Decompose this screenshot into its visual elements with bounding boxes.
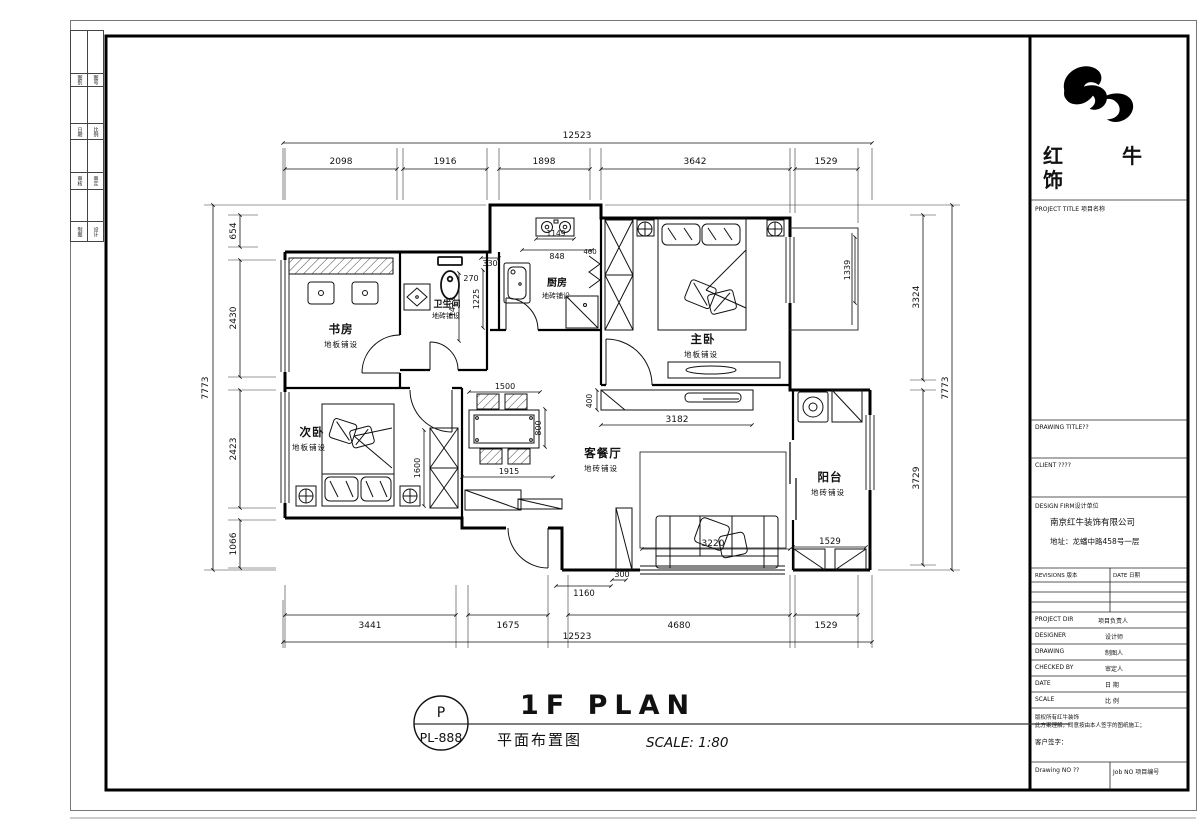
dim-sofa-3220: 3220: [702, 539, 725, 549]
project-title-label: PROJECT TITLE 项目名称: [1035, 204, 1105, 213]
project-dir-cn: 项目负责人: [1098, 616, 1128, 625]
plan-title-en: 1F PLAN: [520, 690, 696, 721]
date-row-label: DATE: [1035, 680, 1051, 687]
balcony-window: [866, 415, 874, 490]
doors: [362, 256, 796, 568]
room-second-finish: 地板铺设: [292, 442, 326, 452]
firm-name: 南京红牛装饰有限公司: [1050, 516, 1135, 528]
shoe-cabinet: [616, 508, 632, 570]
drawing-no-label: Drawing NO ??: [1035, 767, 1079, 774]
dimension-texts: 12523 2098 1916 1898 3642 1529 7773 654 …: [201, 131, 951, 642]
dim-bottom-1: 3441: [359, 621, 382, 631]
edge-label: 设计: [93, 227, 98, 237]
balcony-sliding-door: [790, 442, 796, 520]
master-bed: [658, 218, 746, 330]
dim-dining-1500: 1500: [495, 382, 515, 391]
dim-kitchen-460: 460: [583, 248, 596, 256]
kitchen-sink: [504, 263, 530, 303]
study-desk: [289, 258, 393, 274]
dim-window-1339: 1339: [843, 260, 852, 280]
master-door: [606, 339, 652, 385]
kitchen-folding-door: [589, 256, 600, 288]
study-door: [362, 335, 400, 373]
dim-bath-1225: 1225: [472, 289, 481, 309]
entry-door: [508, 528, 548, 568]
designer-cn: 设计师: [1105, 632, 1123, 641]
extension-lines: [204, 148, 960, 648]
room-study-finish: 地板铺设: [324, 339, 358, 349]
dim-top-total: 12523: [563, 131, 592, 141]
dim-wardrobe-1600: 1600: [413, 458, 422, 478]
room-kitchen-finish: 地砖铺设: [542, 291, 570, 300]
edge-label: 比例: [93, 127, 98, 137]
balcony-cabinet: [832, 390, 862, 422]
room-second: 次卧: [300, 425, 325, 439]
master-dresser: [668, 362, 780, 378]
plan-scale: SCALE: 1:80: [646, 735, 728, 751]
dim-top-1: 2098: [330, 157, 353, 167]
dim-stove-1149: 1149: [546, 229, 565, 238]
dim-right-1: 3324: [912, 285, 922, 308]
drawing-sheet: 12523 2098 1916 1898 3642 1529 7773 654 …: [0, 0, 1200, 832]
dim-left-3: 2423: [229, 438, 239, 461]
bath-door: [430, 342, 458, 370]
revisions-label: REVISIONS 版本: [1035, 571, 1077, 579]
dim-bottom-3: 4680: [668, 621, 691, 631]
edge-label: 图别: [77, 75, 82, 85]
dim-left-2: 2430: [229, 306, 239, 329]
dim-bottom-4: 1529: [815, 621, 838, 631]
date-row-cn: 日 期: [1105, 680, 1119, 689]
dim-hall-1915: 1915: [499, 467, 519, 476]
dim-kitchen-848: 848: [549, 252, 564, 261]
drawing-by-cn: 制图人: [1105, 648, 1123, 657]
dining-table: [469, 410, 539, 448]
drawing-by-label: DRAWING: [1035, 648, 1064, 655]
client-label: CLIENT ????: [1035, 462, 1071, 469]
dim-entry-300: 300: [614, 570, 629, 579]
dim-top-3: 1898: [533, 157, 556, 167]
edge-label: 图号: [93, 75, 98, 85]
scale-row-label: SCALE: [1035, 696, 1054, 703]
drawing-title-label: DRAWING TITLE??: [1035, 424, 1089, 431]
brand-name-line1: 红 牛 装: [1043, 140, 1200, 169]
dim-entry-1160: 1160: [573, 589, 595, 599]
room-master-finish: 地板铺设: [684, 349, 718, 359]
dim-balcony-1529: 1529: [819, 537, 841, 547]
edge-strip-table: 图别 图号 日期 比例 审核 审定 制图 设计: [70, 30, 104, 242]
date-col-label: DATE 日期: [1113, 571, 1140, 579]
tv: [685, 393, 741, 402]
washbasin: [404, 284, 430, 310]
second-bed: [322, 404, 394, 506]
second-bedroom-door: [410, 390, 452, 432]
dim-tv-400: 400: [585, 394, 594, 409]
project-dir-label: PROJECT DIR: [1035, 616, 1073, 623]
fridge: [566, 296, 598, 328]
dim-left-1: 654: [229, 222, 239, 239]
dim-right-2: 3729: [912, 466, 922, 489]
washing-machine: [798, 392, 828, 422]
room-master: 主卧: [691, 332, 716, 346]
room-balcony-finish: 地砖铺设: [811, 487, 845, 497]
brand-name-line2: 饰: [1043, 164, 1063, 193]
dim-left-4: 1066: [229, 532, 239, 555]
master-nightstands: [637, 220, 784, 236]
second-bedroom-window: [281, 392, 289, 503]
master-deco-pillows: [684, 279, 737, 315]
room-study: 书房: [329, 322, 354, 336]
titlebar: P PL-888 1F PLAN 平面布置图 SCALE: 1:80: [414, 690, 1070, 751]
copyright-note: 版权所有红牛装饰: [1035, 713, 1079, 721]
master-wardrobe: [605, 220, 633, 330]
edge-label: 审核: [77, 176, 82, 186]
client-sign-note: 客户签字：: [1035, 736, 1068, 746]
checked-by-label: CHECKED BY: [1035, 664, 1073, 671]
dim-right-total: 7773: [941, 377, 951, 400]
dimension-lines: [213, 143, 952, 642]
dim-bottom-2: 1675: [497, 621, 520, 631]
job-no-label: Job NO 项目编号: [1113, 767, 1159, 776]
edge-label: 制图: [77, 227, 82, 237]
edge-label: 日期: [77, 127, 82, 137]
checked-by-cn: 审定人: [1105, 664, 1123, 673]
company-logo-icon: [1064, 66, 1133, 122]
study-chairs: [308, 282, 378, 304]
balcony-sill-boxes: [794, 549, 866, 570]
dim-top-2: 1916: [434, 157, 457, 167]
dining-chairs: [477, 394, 530, 464]
hall-cabinet: [518, 499, 562, 509]
edge-label: 审定: [93, 176, 98, 186]
designer-label: DESIGNER: [1035, 632, 1066, 639]
dim-bath-330: 330: [482, 259, 497, 268]
sofa-cushions: [693, 517, 748, 559]
design-firm-label: DESIGN FIRM设计单位: [1035, 501, 1099, 510]
dim-bath-270: 270: [463, 274, 478, 283]
plan-title-cn: 平面布置图: [497, 731, 582, 749]
study-window: [281, 260, 289, 372]
dim-left-total: 7773: [201, 377, 211, 400]
dim-top-4: 3642: [684, 157, 707, 167]
badge-code: PL-888: [420, 730, 463, 745]
room-living-finish: 地砖铺设: [584, 463, 618, 473]
plan-canvas: 12523 2098 1916 1898 3642 1529 7773 654 …: [0, 0, 1200, 832]
dim-living-3182: 3182: [666, 415, 689, 425]
windows: [281, 237, 874, 574]
dim-top-5: 1529: [815, 157, 838, 167]
corridor-cabinet: [465, 490, 521, 510]
dim-dining-800: 800: [534, 420, 543, 435]
room-labels: 书房 地板铺设 卫生间 地砖铺设 厨房 地砖铺设 主卧 地板铺设 次卧 地板铺设…: [292, 276, 845, 497]
master-window: [786, 237, 794, 303]
badge-letter: P: [437, 705, 445, 721]
room-balcony: 阳台: [818, 470, 843, 484]
toilet: [438, 257, 462, 299]
firm-address: 地址：龙蟠中路458号一层: [1050, 536, 1139, 547]
room-living: 客餐厅: [583, 446, 622, 460]
room-bath-finish: 地砖铺设: [432, 311, 460, 320]
room-kitchen: 厨房: [547, 276, 567, 289]
dim-bottom-total: 12523: [563, 632, 592, 642]
living-window: [640, 566, 785, 574]
room-bath: 卫生间: [433, 298, 460, 310]
agreement-note: 此方案理解，同意按由本人签字的图纸施工；: [1035, 721, 1145, 729]
scale-row-cn: 比 例: [1105, 696, 1119, 705]
second-wardrobe: [430, 428, 458, 508]
